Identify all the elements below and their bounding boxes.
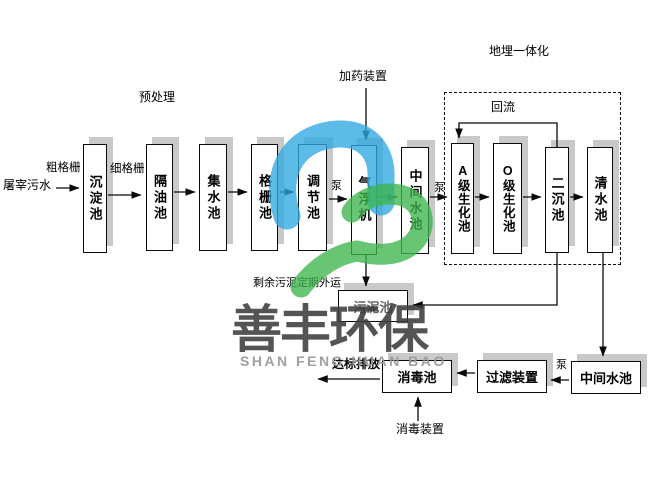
process-flow-diagram: 沉淀池 隔油池 集水池 格栅池 调节池 气浮机 中间水池 A级生化池 O级生化池… <box>0 0 650 500</box>
tank-sedimentation: 沉淀池 <box>83 144 107 253</box>
pretreatment-label: 预处理 <box>139 91 175 105</box>
tank-collecting: 集水池 <box>199 144 227 251</box>
pump-label-3: 泵 <box>556 359 567 372</box>
discharge-label: 达标排放 <box>332 358 380 372</box>
tank-oil-separation: 隔油池 <box>146 144 173 251</box>
filter-device-box: 过滤装置 <box>477 360 547 393</box>
reflux-label: 回流 <box>491 101 515 115</box>
pump-label-2: 泵 <box>434 182 445 195</box>
tank-clear-water: 清水池 <box>587 147 613 253</box>
influent-label: 屠宰污水 <box>3 179 51 193</box>
coarse-screen-label: 粗格栅 <box>46 162 81 175</box>
tank-secondary-sedimentation: 二沉池 <box>545 147 569 253</box>
pump-label-1: 泵 <box>331 180 342 193</box>
tank-sludge: 污泥池 <box>338 290 408 322</box>
tank-intermediate-bottom: 中间水池 <box>571 361 641 394</box>
disinfection-device-label: 消毒装置 <box>396 423 444 437</box>
tank-a-bio: A级生化池 <box>451 143 474 254</box>
tank-intermediate-top: 中间水池 <box>401 147 429 254</box>
tank-disinfection: 消毒池 <box>382 360 452 393</box>
tank-regulating: 调节池 <box>298 144 327 251</box>
dosing-device-label: 加药装置 <box>339 70 387 84</box>
tank-o-bio: O级生化池 <box>493 143 522 254</box>
tank-screen: 格栅池 <box>251 144 278 251</box>
surplus-sludge-label: 剩余污泥定期外运 <box>253 277 341 290</box>
fine-screen-label: 细格栅 <box>110 163 145 176</box>
tank-air-flotation: 气浮机 <box>351 145 377 255</box>
buried-integration-label: 地埋一体化 <box>489 45 549 59</box>
